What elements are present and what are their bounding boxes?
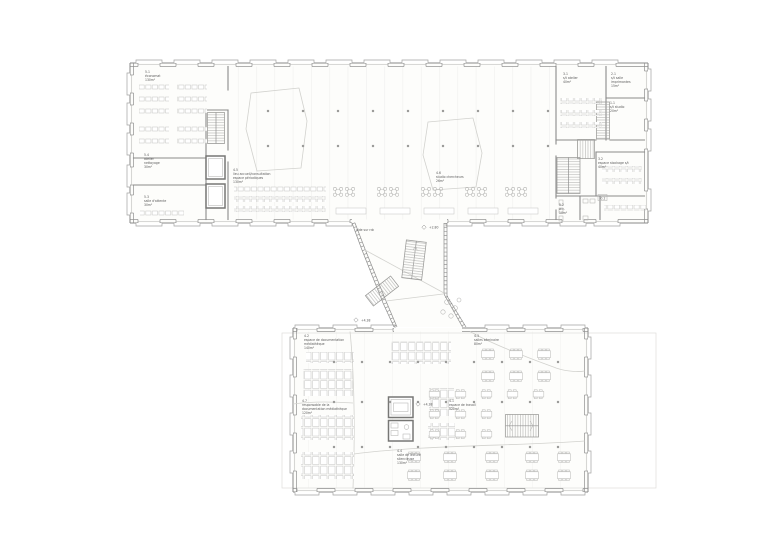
floor-plan-drawing: 5.1 économat 130m² 5.4 atelier nettoyage… (0, 0, 780, 549)
svg-text:130m²: 130m² (145, 78, 156, 82)
elevator-core (389, 397, 414, 418)
svg-text:130m²: 130m² (233, 180, 244, 184)
svg-text:40m²: 40m² (563, 80, 572, 84)
svg-text:140m²: 140m² (304, 346, 315, 350)
svg-text:20m²: 20m² (610, 109, 619, 113)
door-tag: 0.2 (601, 197, 606, 201)
connector-main-stair (402, 240, 426, 280)
void-note: vide sur rdc (356, 228, 375, 232)
svg-text:30m²: 30m² (144, 165, 153, 169)
svg-text:130m²: 130m² (397, 461, 408, 465)
level-diamond-icon (354, 318, 358, 322)
floor-plan-page: 5.1 économat 130m² 5.4 atelier nettoyage… (0, 0, 780, 549)
svg-text:+4.38: +4.38 (423, 402, 433, 406)
svg-text:+4.38: +4.38 (361, 318, 371, 322)
stair-corridor (578, 140, 595, 159)
level-marker-lower: +4.38 (354, 318, 371, 323)
svg-text:26m²: 26m² (436, 179, 445, 183)
svg-text:+2.80: +2.80 (429, 226, 439, 230)
elevator-shaft (206, 156, 225, 179)
svg-text:30m²: 30m² (144, 203, 153, 207)
bottom-stair (506, 415, 539, 438)
elevator-shaft (206, 184, 225, 208)
svg-text:15m²: 15m² (611, 84, 620, 88)
svg-text:520m²: 520m² (449, 407, 460, 411)
svg-text:80m²: 80m² (474, 342, 483, 346)
svg-text:40m²: 40m² (598, 165, 607, 169)
stair-right-wing (597, 102, 610, 139)
svg-text:10m²: 10m² (559, 211, 568, 215)
svg-text:120m²: 120m² (302, 411, 313, 415)
